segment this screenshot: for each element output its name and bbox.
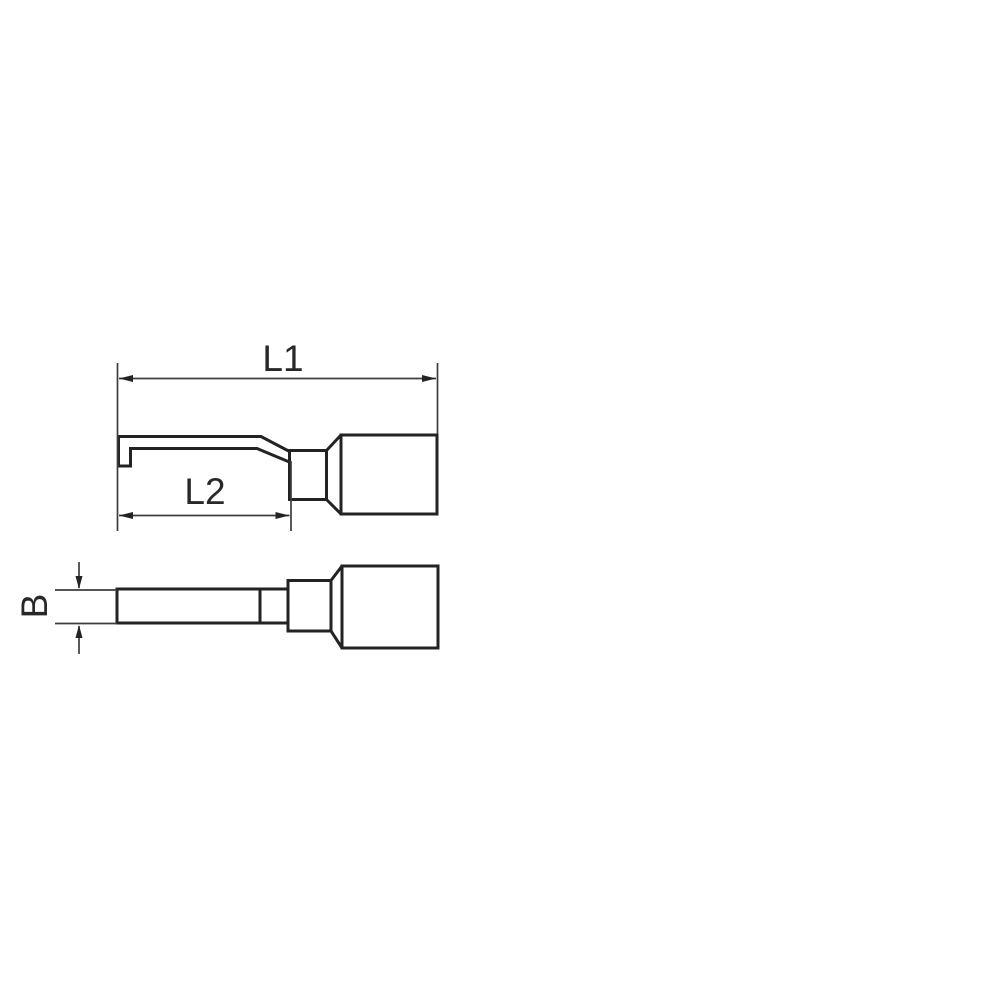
insulation-barrel-side (341, 435, 437, 514)
l2-arrow-right (276, 512, 290, 519)
top-view-dimensions (55, 562, 117, 654)
drawing-canvas: L1 L2 B (0, 0, 1000, 1000)
l2-arrow-left (119, 512, 133, 519)
barrel-funnel-top-lower (331, 631, 342, 648)
wire-barrel-top (288, 581, 331, 632)
wire-barrel-side (290, 451, 327, 500)
dimension-arrowheads (76, 375, 437, 638)
terminal-dimension-drawing: L1 L2 B (0, 0, 1000, 1000)
side-view (119, 435, 438, 514)
label-l2: L2 (184, 471, 225, 512)
b-arrow-down (76, 576, 83, 589)
b-arrow-up (76, 625, 83, 638)
insulation-barrel-top (342, 566, 438, 648)
l1-arrow-right (422, 375, 436, 382)
l1-arrow-left (119, 375, 133, 382)
barrel-funnel-side-bottom (327, 500, 342, 515)
label-b: B (14, 594, 55, 619)
label-l1: L1 (262, 338, 303, 379)
blade-hook-outline (119, 437, 291, 467)
top-view (117, 566, 438, 648)
barrel-funnel-side-top (327, 435, 342, 451)
blade-top-view (117, 589, 288, 623)
barrel-funnel-top-upper (331, 566, 342, 581)
